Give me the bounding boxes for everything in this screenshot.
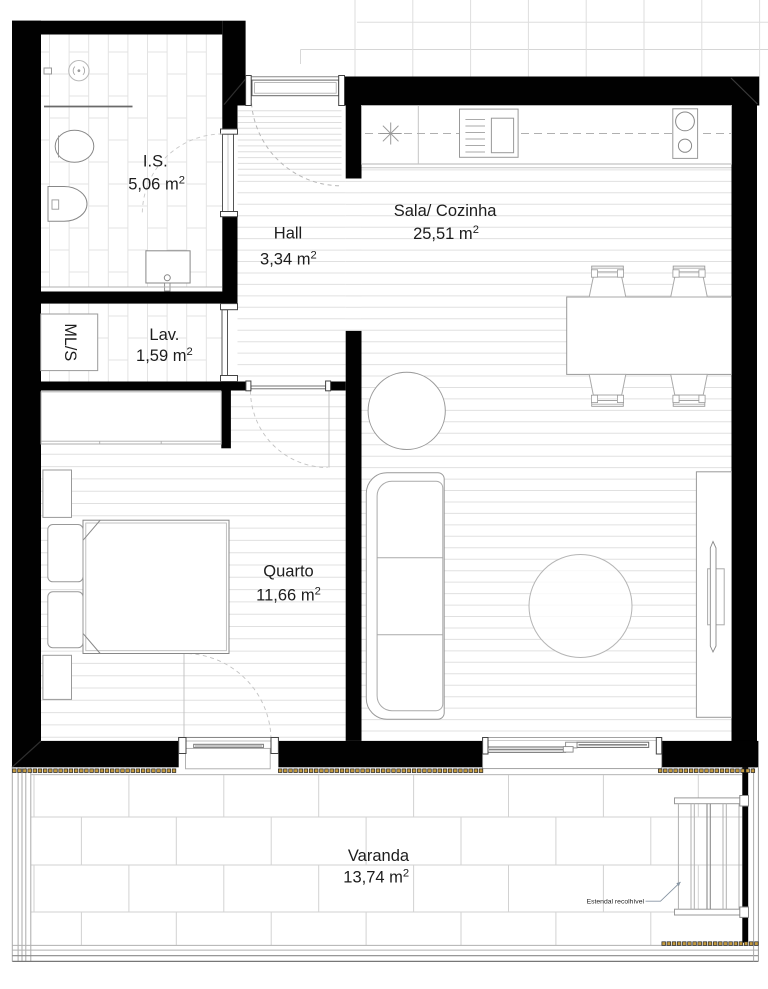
svg-text:Varanda: Varanda <box>348 847 410 865</box>
svg-text:Estendal recolhível: Estendal recolhível <box>587 899 645 906</box>
svg-text:13,74 m2: 13,74 m2 <box>343 868 409 887</box>
svg-text:1,59 m2: 1,59 m2 <box>136 346 193 365</box>
svg-text:25,51 m2: 25,51 m2 <box>413 224 479 243</box>
svg-text:11,66 m2: 11,66 m2 <box>256 586 321 605</box>
svg-text:5,06 m2: 5,06 m2 <box>128 175 185 194</box>
svg-text:Quarto: Quarto <box>263 563 313 581</box>
svg-text:3,34 m2: 3,34 m2 <box>260 249 317 268</box>
svg-text:Hall: Hall <box>274 225 302 243</box>
svg-text:ML/S: ML/S <box>61 323 79 361</box>
svg-text:I.S.: I.S. <box>143 152 168 170</box>
svg-text:Lav.: Lav. <box>149 326 179 344</box>
svg-text:Sala/ Cozinha: Sala/ Cozinha <box>394 202 498 220</box>
